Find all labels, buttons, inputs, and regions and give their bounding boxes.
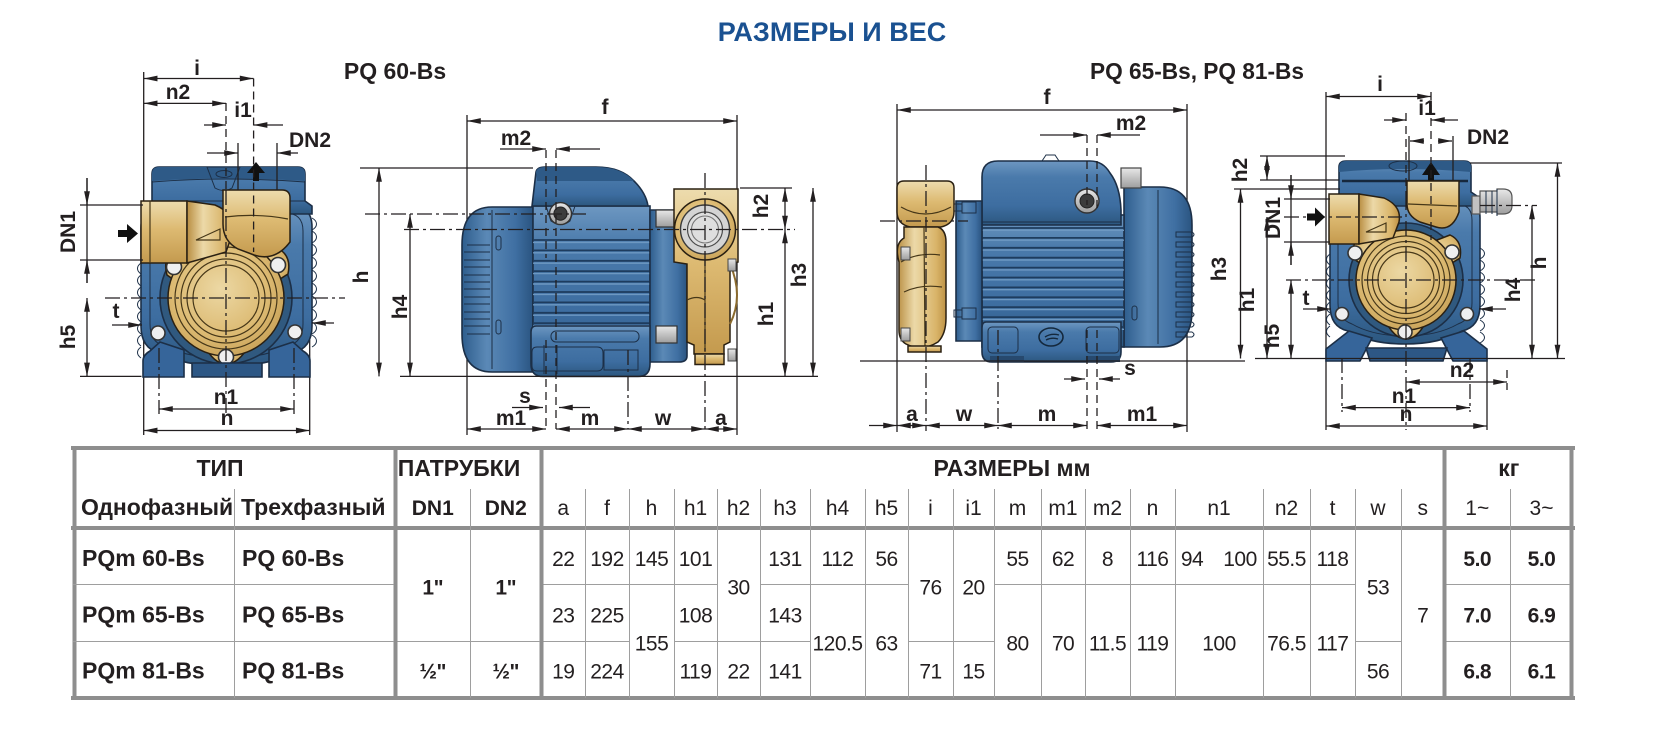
svg-text:h4: h4: [389, 294, 412, 319]
svg-text:h1: h1: [684, 497, 707, 520]
svg-text:t: t: [1330, 497, 1336, 520]
svg-text:h: h: [646, 497, 658, 520]
svg-text:i: i: [928, 497, 933, 520]
svg-text:h3: h3: [788, 263, 811, 288]
svg-text:1": 1": [495, 577, 516, 600]
svg-text:h4: h4: [1502, 277, 1525, 302]
svg-text:53: 53: [1367, 577, 1389, 600]
svg-text:PQm 60-Bs: PQm 60-Bs: [82, 545, 205, 571]
svg-text:108: 108: [679, 605, 713, 628]
svg-text:5.0: 5.0: [1528, 548, 1556, 571]
svg-text:n: n: [1147, 497, 1159, 520]
svg-text:i: i: [1377, 73, 1383, 96]
svg-text:m: m: [581, 407, 600, 430]
svg-text:PQ 60-Bs: PQ 60-Bs: [344, 58, 446, 84]
svg-text:n2: n2: [166, 81, 191, 104]
svg-text:n2: n2: [1450, 359, 1475, 382]
svg-text:m2: m2: [1093, 497, 1122, 520]
svg-text:6.1: 6.1: [1528, 661, 1557, 684]
svg-text:PQ 65-Bs: PQ 65-Bs: [242, 602, 344, 628]
svg-text:i: i: [194, 57, 200, 80]
svg-text:h1: h1: [1236, 287, 1259, 312]
svg-text:w: w: [1369, 497, 1386, 520]
svg-text:i1: i1: [965, 497, 981, 520]
svg-text:7.0: 7.0: [1463, 605, 1491, 628]
svg-text:n: n: [221, 407, 234, 430]
svg-text:19: 19: [552, 661, 574, 684]
svg-text:s: s: [1124, 357, 1136, 380]
svg-text:m1: m1: [496, 407, 527, 430]
svg-text:n1: n1: [214, 386, 239, 409]
svg-text:116: 116: [1137, 548, 1169, 571]
svg-text:h4: h4: [826, 497, 850, 520]
svg-text:62: 62: [1052, 548, 1074, 571]
svg-text:m: m: [1038, 403, 1057, 426]
svg-text:кг: кг: [1498, 455, 1519, 481]
svg-text:224: 224: [590, 661, 624, 684]
svg-text:22: 22: [552, 548, 574, 571]
svg-text:76: 76: [919, 577, 941, 600]
svg-text:DN2: DN2: [485, 497, 527, 520]
svg-text:117: 117: [1317, 633, 1349, 656]
svg-text:h2: h2: [727, 497, 750, 520]
svg-text:DN1: DN1: [57, 211, 80, 253]
svg-text:t: t: [1303, 287, 1310, 310]
svg-text:6.9: 6.9: [1528, 605, 1556, 628]
svg-text:s: s: [1418, 497, 1429, 520]
svg-text:100: 100: [1223, 548, 1257, 571]
svg-text:PQ 60-Bs: PQ 60-Bs: [242, 545, 344, 571]
svg-text:1": 1": [422, 577, 443, 600]
svg-text:PQm 65-Bs: PQm 65-Bs: [82, 602, 205, 628]
svg-text:20: 20: [962, 577, 984, 600]
svg-text:w: w: [654, 407, 672, 430]
svg-text:30: 30: [727, 577, 749, 600]
svg-text:112: 112: [822, 548, 854, 571]
svg-text:71: 71: [919, 661, 941, 684]
svg-text:ТИП: ТИП: [196, 455, 243, 481]
svg-text:120.5: 120.5: [812, 633, 862, 656]
svg-text:94: 94: [1181, 548, 1204, 571]
svg-text:n2: n2: [1275, 497, 1298, 520]
svg-text:h3: h3: [773, 497, 796, 520]
svg-text:f: f: [602, 96, 610, 119]
svg-text:119: 119: [1137, 633, 1169, 656]
svg-text:h5: h5: [1261, 323, 1284, 348]
svg-text:63: 63: [875, 633, 897, 656]
svg-text:m2: m2: [501, 127, 531, 150]
svg-text:a: a: [715, 407, 727, 430]
svg-text:h3: h3: [1208, 257, 1231, 282]
svg-text:145: 145: [635, 548, 669, 571]
svg-text:ПАТРУБКИ: ПАТРУБКИ: [398, 455, 521, 481]
svg-text:6.8: 6.8: [1463, 661, 1492, 684]
svg-text:h: h: [1528, 257, 1551, 270]
svg-text:76.5: 76.5: [1267, 633, 1306, 656]
svg-text:1~: 1~: [1465, 497, 1489, 520]
svg-text:h1: h1: [755, 301, 778, 326]
svg-text:n1: n1: [1207, 497, 1230, 520]
svg-text:225: 225: [590, 605, 624, 628]
svg-text:55: 55: [1006, 548, 1028, 571]
svg-text:m1: m1: [1048, 497, 1077, 520]
svg-text:56: 56: [1367, 661, 1389, 684]
svg-text:15: 15: [962, 661, 984, 684]
svg-text:i1: i1: [1418, 97, 1436, 120]
svg-text:DN2: DN2: [1467, 126, 1509, 149]
svg-text:t: t: [113, 300, 120, 323]
svg-text:100: 100: [1202, 633, 1236, 656]
svg-text:h: h: [350, 271, 373, 284]
svg-text:DN1: DN1: [1262, 197, 1285, 239]
svg-text:PQ 81-Bs: PQ 81-Bs: [242, 658, 344, 684]
svg-text:23: 23: [552, 605, 574, 628]
svg-text:i1: i1: [234, 99, 252, 122]
svg-text:118: 118: [1317, 548, 1349, 571]
svg-text:s: s: [519, 385, 531, 408]
svg-text:192: 192: [590, 548, 624, 571]
svg-text:a: a: [557, 497, 569, 520]
svg-text:5.0: 5.0: [1463, 548, 1491, 571]
svg-text:119: 119: [680, 661, 712, 684]
svg-text:8: 8: [1102, 548, 1113, 571]
svg-text:141: 141: [768, 661, 802, 684]
svg-text:101: 101: [679, 548, 713, 571]
svg-text:55.5: 55.5: [1267, 548, 1306, 571]
svg-text:70: 70: [1052, 633, 1074, 656]
svg-text:22: 22: [727, 661, 749, 684]
svg-text:131: 131: [768, 548, 802, 571]
svg-text:h2: h2: [1229, 158, 1252, 183]
svg-text:143: 143: [768, 605, 802, 628]
svg-text:h5: h5: [57, 324, 80, 349]
svg-text:f: f: [1044, 86, 1052, 109]
svg-text:½": ½": [420, 661, 446, 684]
svg-text:7: 7: [1417, 605, 1428, 628]
svg-text:h5: h5: [875, 497, 898, 520]
svg-text:PQ 65-Bs, PQ 81-Bs: PQ 65-Bs, PQ 81-Bs: [1090, 58, 1304, 84]
svg-text:РАЗМЕРЫ И ВЕС: РАЗМЕРЫ И ВЕС: [718, 17, 946, 47]
svg-text:m2: m2: [1116, 112, 1146, 135]
svg-text:DN1: DN1: [412, 497, 454, 520]
svg-text:w: w: [955, 403, 973, 426]
svg-text:m: m: [1009, 497, 1027, 520]
svg-text:a: a: [906, 403, 918, 426]
svg-text:11.5: 11.5: [1089, 633, 1126, 656]
svg-text:f: f: [604, 497, 610, 520]
svg-text:56: 56: [875, 548, 897, 571]
svg-text:½": ½": [493, 661, 519, 684]
svg-text:PQm 81-Bs: PQm 81-Bs: [82, 658, 205, 684]
svg-text:3~: 3~: [1530, 497, 1554, 520]
svg-text:DN2: DN2: [289, 129, 331, 152]
svg-text:80: 80: [1006, 633, 1028, 656]
svg-text:Трехфазный: Трехфазный: [241, 494, 386, 520]
svg-text:h2: h2: [750, 194, 773, 219]
svg-text:РАЗМЕРЫ мм: РАЗМЕРЫ мм: [933, 455, 1090, 481]
svg-text:155: 155: [635, 633, 669, 656]
svg-text:n: n: [1400, 403, 1413, 426]
svg-text:Однофазный: Однофазный: [81, 494, 233, 520]
svg-text:m1: m1: [1127, 403, 1158, 426]
